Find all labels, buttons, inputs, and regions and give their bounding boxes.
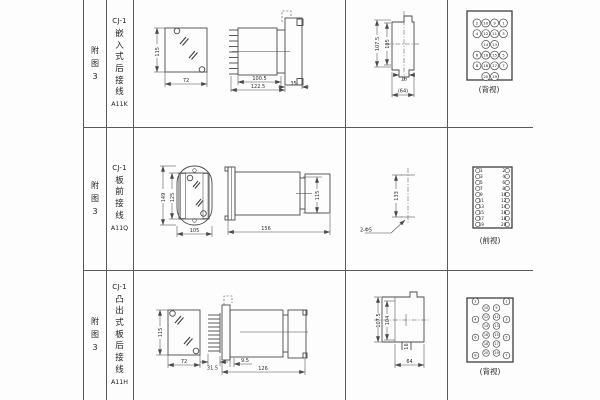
terminal-number: 16 xyxy=(483,52,488,57)
dim-label: 35 xyxy=(290,81,296,87)
terminal-number: 4 xyxy=(474,318,476,322)
terminal-number: 6 xyxy=(502,180,505,185)
terminal-number: 19 xyxy=(492,74,497,79)
terminal-number: 2 xyxy=(474,300,476,304)
terminal-number: 11 xyxy=(492,31,497,36)
terminal-number: 1 xyxy=(480,168,483,173)
terminal-number: 13 xyxy=(494,324,498,328)
dim-label: 105 xyxy=(190,228,200,234)
row1-side-view: 100.5 122.5 35 xyxy=(229,11,309,92)
figure-sheet: 附 图 3 附 图 3 附 图 3 CJ-1 嵌 入 式 后 接 线 A11K … xyxy=(0,0,600,400)
terminal-number: 15 xyxy=(479,210,485,215)
row3-front-view: 115 72 xyxy=(156,310,200,368)
terminal-number: 11 xyxy=(479,198,485,203)
row1-terminal-back-view: 2109141211314136161558181772019 (背视) xyxy=(467,11,512,94)
row2-drill-view: 133 2-Φ5 xyxy=(360,168,415,234)
dim-label: 125 xyxy=(170,193,176,203)
terminal-number: 8 xyxy=(474,354,476,358)
terminal-number: 17 xyxy=(494,342,498,346)
terminal-number: 15 xyxy=(494,333,498,337)
row1-cutout-view: 107.5 105 16 (64) xyxy=(374,11,420,97)
dim-label: 100.5 xyxy=(252,76,266,82)
dim-label: 149 xyxy=(161,193,167,203)
row2-side-view: 115 156 xyxy=(225,167,330,235)
terminal-number: 6 xyxy=(474,336,476,340)
terminal-number: 12 xyxy=(483,31,488,36)
terminal-number: 17 xyxy=(492,63,497,68)
row3-terminal-back-view: 2468101214161820911131517191357 (背视) xyxy=(467,298,513,376)
terminal-number: 9 xyxy=(480,192,483,197)
terminal-number: 19 xyxy=(479,222,485,227)
dim-label: 107.5 xyxy=(375,37,381,51)
terminal-number: 14 xyxy=(484,324,488,328)
dim-label: (64) xyxy=(398,89,408,95)
terminal-number: 1 xyxy=(505,300,507,304)
terminal-number: 3 xyxy=(505,318,507,322)
terminal-number: 11 xyxy=(494,315,498,319)
terminal-number: 20 xyxy=(484,351,488,355)
terminal-number: 18 xyxy=(483,63,488,68)
terminal-number: 10 xyxy=(483,20,488,25)
dim-label: 64 xyxy=(406,359,412,365)
dim-label: 105 xyxy=(385,39,391,49)
dim-label: 72 xyxy=(183,78,189,84)
terminal-number: 15 xyxy=(492,52,497,57)
row3-side-view: 31.5 9.5 126 xyxy=(200,296,308,375)
terminal-number: 7 xyxy=(505,354,507,358)
terminal-number: 18 xyxy=(484,342,488,346)
terminal-number: 20 xyxy=(501,222,507,227)
terminal-circle xyxy=(505,168,509,172)
terminal-number: 4 xyxy=(502,174,505,179)
terminal-number: 10 xyxy=(484,306,488,310)
view-label-row1: (背视) xyxy=(479,84,500,94)
dim-label: 9.5 xyxy=(241,358,249,364)
dim-label: 122.5 xyxy=(251,84,265,90)
row2-terminal-front-view: 1234567891011121314151617181920 (前视) xyxy=(473,167,512,245)
dim-label: 2-Φ5 xyxy=(360,228,372,234)
dim-label: 133 xyxy=(394,191,400,201)
dim-label: 126 xyxy=(258,366,268,372)
terminal-number: 9 xyxy=(495,306,497,310)
terminal-number: 16 xyxy=(501,210,507,215)
terminal-number: 5 xyxy=(505,336,507,340)
dim-label: 16 xyxy=(401,77,407,83)
terminal-number: 16 xyxy=(484,333,488,337)
terminal-number: 8 xyxy=(502,186,505,191)
terminal-circle xyxy=(505,180,509,184)
row2-front-view: 149 125 105 xyxy=(160,166,212,237)
terminal-number: 3 xyxy=(480,174,483,179)
terminal-number: 10 xyxy=(501,192,507,197)
row3-cutout-view: 107.5 104 16 64 xyxy=(374,292,430,368)
dim-label: 115 xyxy=(155,47,161,57)
terminal-number: 14 xyxy=(501,204,507,209)
dim-label: 104 xyxy=(385,316,391,326)
terminal-number: 12 xyxy=(484,315,488,319)
terminal-number: 12 xyxy=(501,198,507,203)
terminal-number: 13 xyxy=(492,42,497,47)
dim-label: 115 xyxy=(315,191,321,201)
view-label-row3: (背视) xyxy=(480,366,501,376)
terminal-number: 18 xyxy=(501,216,507,221)
terminal-number: 7 xyxy=(480,186,483,191)
dim-label: 16 xyxy=(404,343,410,349)
terminal-grid-back-top: 2109141211314136161558181772019 xyxy=(473,19,507,81)
terminal-grid-front-mid: 1234567891011121314151617181920 xyxy=(476,168,510,227)
dim-label: 115 xyxy=(158,328,164,338)
terminal-grid-back-bottom: 2468101214161820911131517191357 xyxy=(472,298,510,359)
dim-label: 107.5 xyxy=(376,313,382,327)
terminal-circle xyxy=(505,174,509,178)
terminal-number: 2 xyxy=(502,168,505,173)
terminal-number: 13 xyxy=(479,204,485,209)
dim-label: 156 xyxy=(261,226,271,232)
view-label-row2: (前视) xyxy=(480,235,501,245)
terminal-number: 20 xyxy=(483,74,488,79)
terminal-number: 5 xyxy=(480,180,483,185)
terminal-number: 17 xyxy=(479,216,485,221)
row1-front-view: 115 72 xyxy=(154,28,207,87)
dim-label: 72 xyxy=(181,359,187,365)
technical-drawing-canvas: 115 72 100.5 122.5 35 xyxy=(0,0,600,400)
terminal-number: 19 xyxy=(494,351,498,355)
terminal-circle xyxy=(505,186,509,190)
dim-label: 31.5 xyxy=(207,366,218,372)
terminal-number: 14 xyxy=(483,42,488,47)
